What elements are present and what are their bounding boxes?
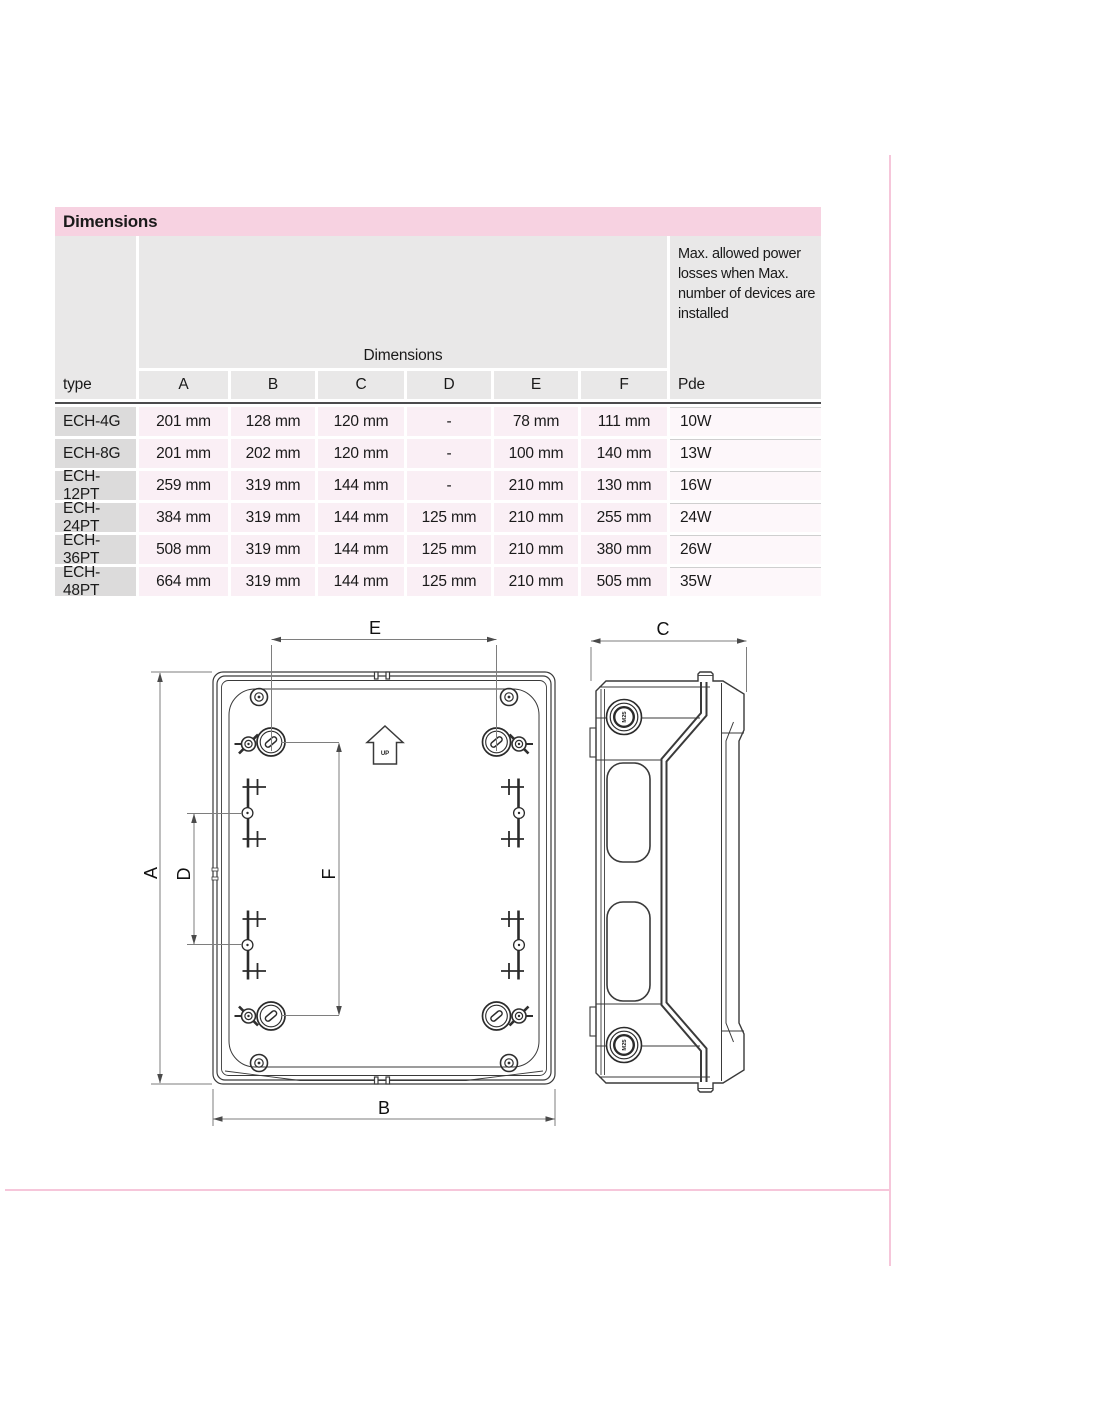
cell-e: 100 mm (494, 439, 578, 468)
cell-f: 380 mm (581, 535, 667, 564)
col-header-f: F (581, 371, 667, 399)
cell-e: 210 mm (494, 503, 578, 532)
cell-c: 144 mm (318, 503, 404, 532)
header-rule (55, 402, 821, 404)
dim-D: D (174, 814, 242, 945)
mounting-holes (257, 728, 511, 1030)
row-type: ECH-4G (55, 407, 136, 436)
col-header-dimensions: Dimensions (139, 236, 667, 368)
cell-c: 120 mm (318, 439, 404, 468)
technical-drawing: UP (0, 600, 1100, 1160)
svg-text:UP: UP (381, 751, 389, 757)
cable-knockout-oblong (607, 763, 650, 862)
page-guide-horizontal (5, 1189, 890, 1191)
col-header-pde: Max. allowed power losses when Max. numb… (670, 236, 821, 399)
cell-e: 210 mm (494, 471, 578, 500)
svg-text:M25: M25 (622, 1039, 628, 1051)
cell-pde: 35W (670, 567, 821, 596)
col-header-b: B (231, 371, 315, 399)
cell-b: 319 mm (231, 567, 315, 596)
dimensions-table: Dimensions type Dimensions Max. allowed … (55, 207, 821, 596)
cell-a: 664 mm (139, 567, 228, 596)
cell-d: 125 mm (407, 567, 491, 596)
col-header-e: E (494, 371, 578, 399)
dim-B: B (213, 1089, 555, 1126)
cell-f: 505 mm (581, 567, 667, 596)
cell-pde: 16W (670, 471, 821, 500)
svg-text:F: F (319, 869, 339, 880)
cell-a: 259 mm (139, 471, 228, 500)
cable-knockout-oblong (607, 902, 650, 1001)
table-grid: type Dimensions Max. allowed power losse… (55, 236, 821, 596)
side-view-drawing: M25 M25 (590, 672, 744, 1092)
cell-d: - (407, 439, 491, 468)
cell-pde: 26W (670, 535, 821, 564)
cell-e: 210 mm (494, 535, 578, 564)
cell-f: 255 mm (581, 503, 667, 532)
svg-text:E: E (369, 618, 381, 638)
rear-view-drawing: UP (212, 672, 555, 1084)
svg-text:A: A (141, 867, 161, 879)
row-type: ECH-48PT (55, 567, 136, 596)
cell-b: 202 mm (231, 439, 315, 468)
cell-e: 78 mm (494, 407, 578, 436)
svg-text:C: C (657, 619, 670, 639)
corner-screws (251, 689, 518, 1072)
datasheet-page: Dimensions type Dimensions Max. allowed … (0, 0, 1100, 1422)
col-header-c: C (318, 371, 404, 399)
cell-pde: 24W (670, 503, 821, 532)
cell-c: 144 mm (318, 471, 404, 500)
col-header-type: type (55, 236, 136, 399)
cell-a: 384 mm (139, 503, 228, 532)
din-rail-clips (242, 779, 524, 980)
cell-pde: 10W (670, 407, 821, 436)
cell-a: 201 mm (139, 439, 228, 468)
cell-f: 140 mm (581, 439, 667, 468)
row-type: ECH-8G (55, 439, 136, 468)
power-note: Max. allowed power losses when Max. numb… (678, 244, 819, 324)
svg-text:D: D (174, 868, 194, 881)
col-header-d: D (407, 371, 491, 399)
cell-d: - (407, 471, 491, 500)
row-type: ECH-36PT (55, 535, 136, 564)
row-type: ECH-24PT (55, 503, 136, 532)
dim-F: F (281, 743, 342, 1016)
cell-d: 125 mm (407, 503, 491, 532)
cell-d: - (407, 407, 491, 436)
cell-d: 125 mm (407, 535, 491, 564)
cover-profile-inner (667, 682, 707, 1082)
cell-b: 319 mm (231, 503, 315, 532)
cell-e: 210 mm (494, 567, 578, 596)
svg-text:M25: M25 (622, 711, 628, 723)
cell-c: 120 mm (318, 407, 404, 436)
pde-label: Pde (678, 376, 819, 394)
cell-b: 319 mm (231, 471, 315, 500)
wing-screws (235, 735, 534, 1026)
svg-text:B: B (378, 1098, 390, 1118)
cell-c: 144 mm (318, 567, 404, 596)
dim-E: E (272, 618, 497, 751)
section-title: Dimensions (55, 207, 821, 236)
cell-b: 319 mm (231, 535, 315, 564)
cable-knockouts-round: M25 M25 (607, 700, 642, 1063)
cell-pde: 13W (670, 439, 821, 468)
cell-f: 111 mm (581, 407, 667, 436)
col-header-a: A (139, 371, 228, 399)
up-arrow-icon: UP (367, 726, 403, 764)
dimension-annotations: A D F (141, 618, 747, 1126)
cell-c: 144 mm (318, 535, 404, 564)
cell-b: 128 mm (231, 407, 315, 436)
cell-f: 130 mm (581, 471, 667, 500)
cell-a: 201 mm (139, 407, 228, 436)
cell-a: 508 mm (139, 535, 228, 564)
row-type: ECH-12PT (55, 471, 136, 500)
